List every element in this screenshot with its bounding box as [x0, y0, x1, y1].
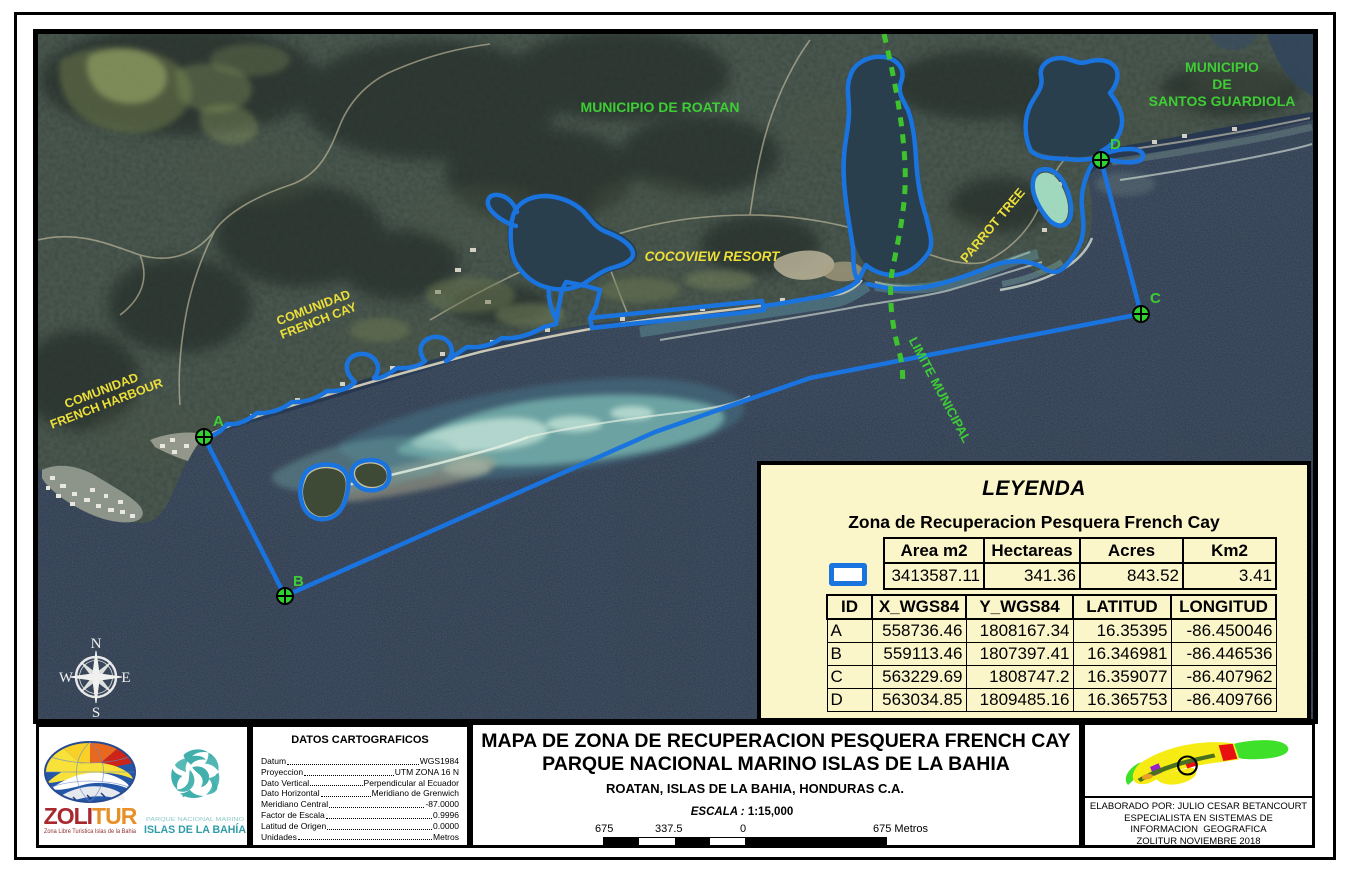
svg-text:A: A [213, 413, 224, 430]
svg-text:N: N [91, 636, 102, 652]
svg-text:Zona Libre Turistica Islas de: Zona Libre Turistica Islas de la Bahia [44, 829, 137, 835]
svg-text:D: D [1110, 136, 1121, 153]
svg-text:COCOVIEW RESORT: COCOVIEW RESORT [645, 249, 782, 264]
svg-text:PARQUE NACIONAL MARINO: PARQUE NACIONAL MARINO [146, 817, 245, 823]
svg-text:MUNICIPIO: MUNICIPIO [1185, 59, 1259, 75]
svg-text:SANTOS GUARDIOLA: SANTOS GUARDIOLA [1149, 93, 1296, 109]
svg-text:S: S [92, 705, 100, 719]
svg-text:DE: DE [1212, 76, 1231, 92]
svg-text:C: C [1150, 290, 1161, 307]
svg-text:E: E [121, 670, 130, 686]
svg-text:MUNICIPIO DE ROATAN: MUNICIPIO DE ROATAN [581, 99, 740, 115]
svg-text:ISLAS DE LA BAHÍA: ISLAS DE LA BAHÍA [144, 823, 246, 836]
svg-text:ZOLITUR: ZOLITUR [44, 803, 138, 829]
svg-text:B: B [293, 573, 304, 590]
svg-text:W: W [59, 670, 74, 686]
